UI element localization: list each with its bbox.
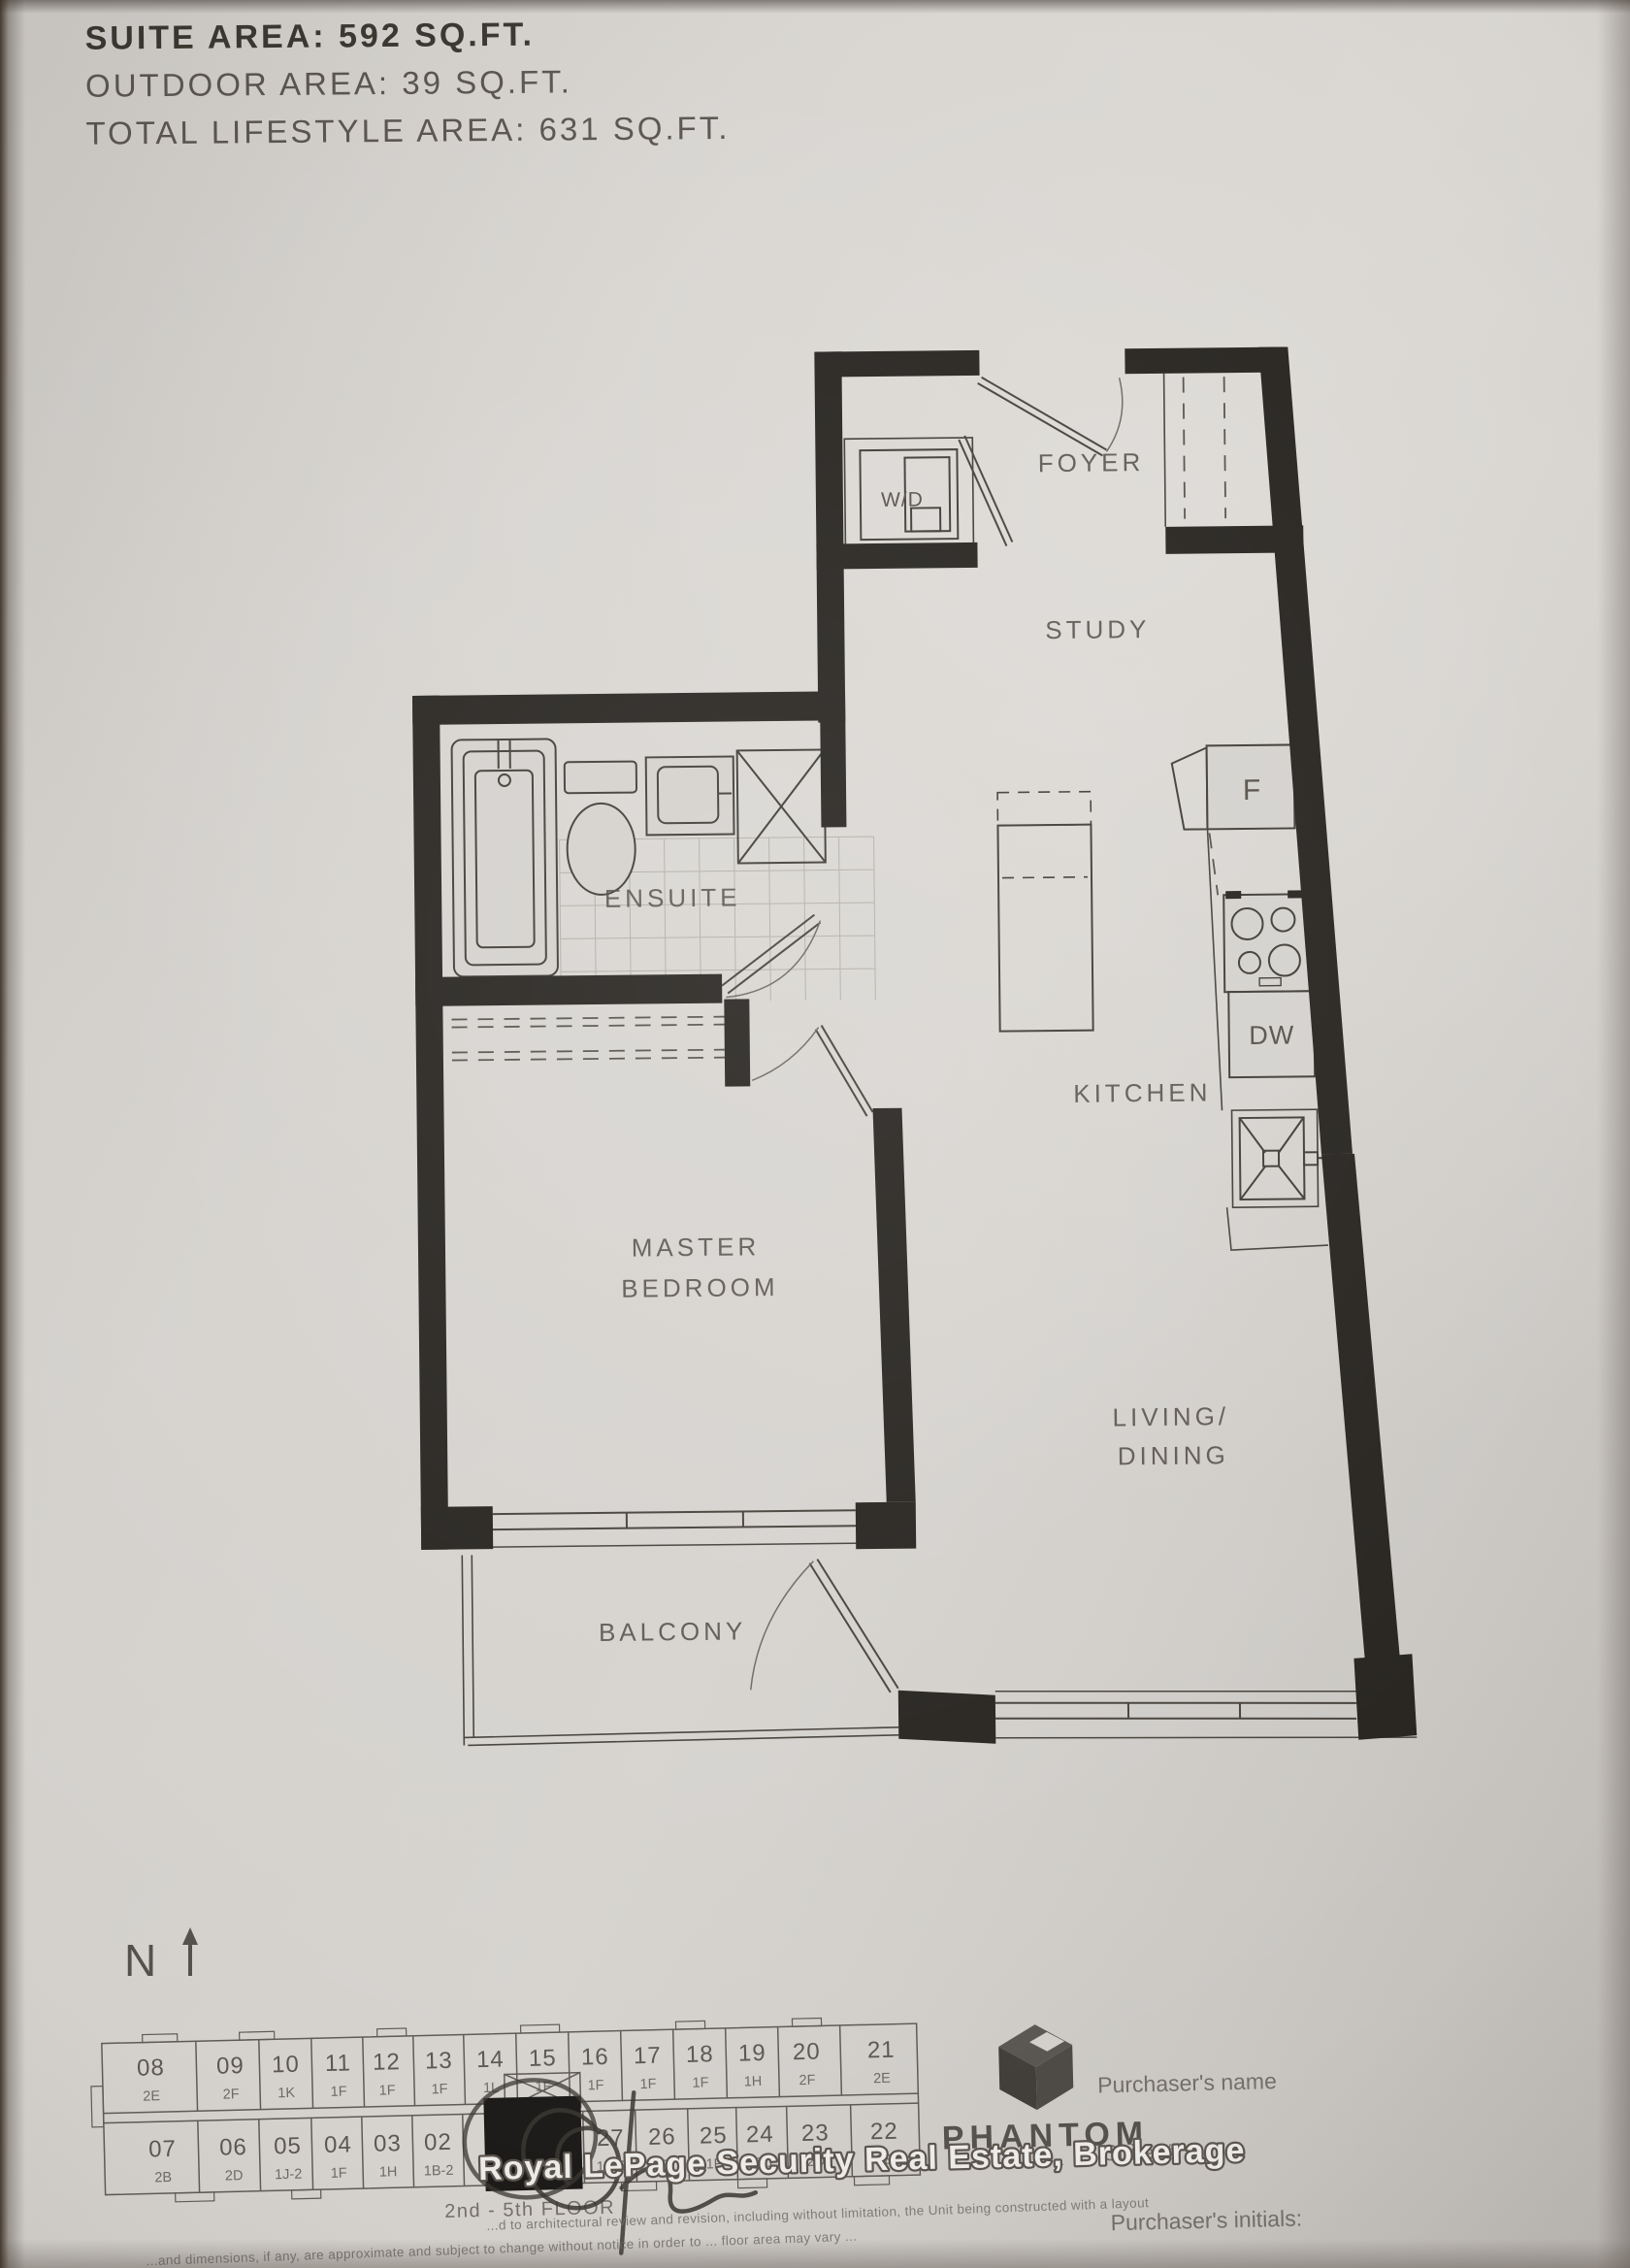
stove-icon [1223, 890, 1310, 992]
ensuite-label: ENSUITE [604, 882, 741, 912]
keyplan-unit-type: 2F [799, 2073, 815, 2088]
keyplan-unit-number: 11 [325, 2050, 352, 2077]
purchaser-name-label: Purchaser's name [1097, 2068, 1277, 2098]
keyplan-unit-type: 1F [692, 2075, 708, 2090]
keyplan-unit-type: 1H [744, 2074, 763, 2089]
total-area-text: TOTAL LIFESTYLE AREA: 631 SQ.FT. [85, 110, 730, 151]
living-window [995, 1687, 1418, 1742]
floorplan-drawing: SUITE AREA: 592 SQ.FT. OUTDOOR AREA: 39 … [0, 0, 1630, 2268]
kitchen-label: KITCHEN [1073, 1077, 1211, 1107]
keyplan-unit-number: 20 [793, 2039, 821, 2066]
bathroom-sink-icon [646, 756, 734, 835]
fridge-icon [1172, 744, 1295, 829]
master-bedroom-label-line1: MASTER [632, 1232, 761, 1262]
keyplan-unit-number: 21 [867, 2037, 896, 2064]
keyplan-unit-type: 1F [587, 2078, 603, 2093]
keyplan-unit-type: 2E [873, 2071, 891, 2087]
closet-rod [1224, 377, 1226, 518]
wd-closet-door [959, 435, 1012, 546]
keyplan-unit-type: 1F [378, 2083, 395, 2098]
suite-area-text: SUITE AREA: 592 SQ.FT. [84, 16, 535, 57]
north-arrow: N [124, 1927, 198, 1986]
keyplan-unit-type: 1H [379, 2164, 398, 2180]
header-text: SUITE AREA: 592 SQ.FT. OUTDOOR AREA: 39 … [84, 15, 730, 151]
toilet-icon [565, 762, 637, 896]
bathtub-icon [451, 739, 558, 976]
keyplan-unit-number: 17 [634, 2043, 662, 2070]
keyplan-unit-number: 14 [476, 2046, 505, 2073]
keyplan-unit-number: 06 [219, 2134, 247, 2161]
keyplan-unit-number: 10 [272, 2052, 300, 2079]
fine-print-line2: ...and dimensions, if any, are approxima… [146, 2229, 857, 2268]
keyplan-unit-type: 1F [331, 2165, 347, 2181]
doors [716, 376, 1136, 1693]
kitchen-island [997, 792, 1093, 1032]
floor-plan: FOYER STUDY ENSUITE KITCHEN MASTER BEDRO… [408, 345, 1417, 1750]
living-dining-label-line2: DINING [1118, 1440, 1229, 1470]
floorplan-photo: SUITE AREA: 592 SQ.FT. OUTDOOR AREA: 39 … [0, 0, 1630, 2268]
living-dining-label-line1: LIVING/ [1112, 1401, 1229, 1431]
keyplan-unit-number: 15 [529, 2045, 557, 2072]
keyplan-unit-number: 18 [686, 2041, 714, 2068]
keyplan-unit-type: 1K [277, 2086, 295, 2101]
keyplan-unit-type: 2D [225, 2168, 244, 2184]
bedroom-door [816, 1025, 873, 1117]
keyplan-unit-type: 1B-2 [424, 2163, 454, 2180]
balcony-railing [462, 1551, 898, 1746]
keyplan-unit-number: 04 [324, 2131, 352, 2158]
keyplan-unit-type: 1F [330, 2084, 346, 2099]
kitchen-sink-icon [1232, 1109, 1332, 1207]
fine-print: ...d to architectural review and revisio… [145, 2195, 1150, 2268]
keyplan-unit-number: 16 [581, 2044, 609, 2071]
keyplan-unit-type: 1J-2 [275, 2167, 303, 2184]
brokerage-watermark: Royal LePage Security Real Estate, Broke… [478, 2132, 1246, 2187]
keyplan-unit-number: 03 [374, 2130, 402, 2157]
keyplan-unit-number: 05 [274, 2133, 302, 2160]
ensuite-door [721, 915, 821, 994]
north-label: N [124, 1935, 156, 1986]
bottom-section: 082E092F101K111F121F131F141L151F161F171F… [90, 2007, 1303, 2268]
balcony-label: BALCONY [599, 1616, 747, 1647]
master-bedroom-label-line2: BEDROOM [621, 1272, 779, 1303]
keyplan-unit-type: 2E [143, 2088, 160, 2104]
keyplan-unit-type: 2B [154, 2170, 172, 2186]
closet-rod [1184, 378, 1186, 519]
keyplan-unit-type: 1F [639, 2077, 656, 2092]
keyplan-unit-number: 13 [425, 2048, 453, 2075]
north-arrowhead-icon [182, 1927, 198, 1945]
bedroom-window [433, 1510, 912, 1548]
outdoor-area-text: OUTDOOR AREA: 39 SQ.FT. [85, 63, 572, 103]
linen-closet-icon [737, 750, 826, 864]
keyplan-unit-type: 1F [431, 2082, 447, 2097]
fridge-label: F [1243, 774, 1261, 806]
bedroom-closet-shelves [452, 1017, 729, 1061]
keyplan-unit-number: 02 [424, 2129, 452, 2156]
keyplan-unit-number: 09 [216, 2053, 244, 2080]
washer-dryer-label: W/D [881, 488, 924, 510]
keyplan-unit-number: 12 [373, 2049, 401, 2076]
balcony-door [809, 1559, 897, 1693]
door-swing-arcs [720, 378, 1136, 1690]
keyplan-unit-number: 07 [148, 2136, 177, 2163]
foyer-label: FOYER [1038, 447, 1145, 477]
entry-door [978, 376, 1107, 456]
keyplan-unit-number: 08 [137, 2054, 165, 2082]
study-label: STUDY [1045, 614, 1150, 644]
room-labels: FOYER STUDY ENSUITE KITCHEN MASTER BEDRO… [586, 445, 1300, 1647]
dishwasher-label: DW [1249, 1020, 1294, 1049]
phantom-cube-icon [998, 2023, 1074, 2111]
keyplan-unit-type: 2F [223, 2087, 240, 2102]
keyplan-unit-number: 19 [738, 2040, 766, 2067]
